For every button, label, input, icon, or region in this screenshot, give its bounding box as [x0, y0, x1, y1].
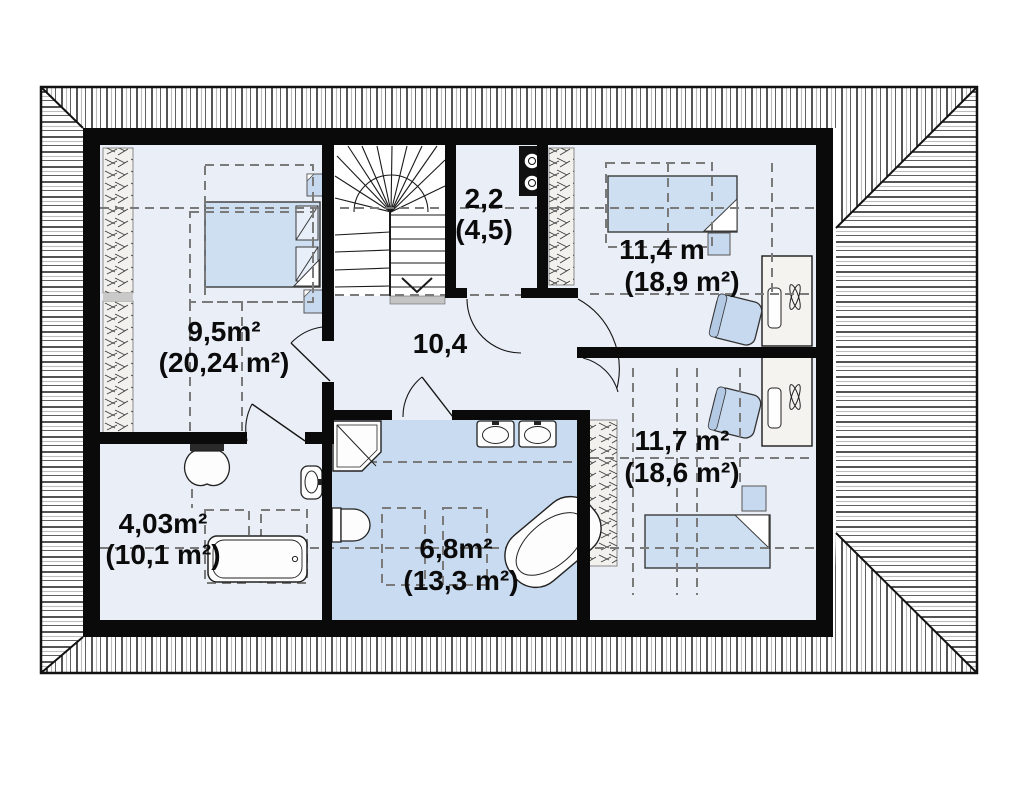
- shower-cabin: [333, 421, 381, 471]
- room-label-bathroom-area: 6,8m²: [419, 533, 492, 564]
- roof-slope-left: [41, 87, 83, 673]
- room-label-bedroom-2-area: 11,4 m: [619, 234, 705, 265]
- desk: [762, 256, 812, 346]
- stair-landing-strip: [390, 296, 445, 304]
- room-label-bedroom-3-total: (18,6 m²): [624, 457, 739, 488]
- room-label-bedroom-2-total: (18,9 m²): [624, 266, 739, 297]
- toilet: [185, 443, 230, 486]
- room-label-storage-area: 2,2: [465, 183, 504, 214]
- sink: [477, 421, 514, 447]
- room-label-bedroom-1-total: (20,24 m²): [159, 347, 290, 378]
- room-label-wc-total: (10,1 m²): [105, 539, 220, 570]
- wardrobe-bedroom-2: [549, 148, 574, 285]
- washbasin: [301, 466, 322, 499]
- room-label-wc-area: 4,03m²: [119, 508, 208, 539]
- desk: [762, 356, 812, 446]
- floor-plan-drawing: 9,5m² (20,24 m²) 10,4 2,2 (4,5) 11,4 m (…: [0, 0, 1024, 808]
- room-label-hall-area: 10,4: [413, 328, 468, 359]
- single-bed: [608, 176, 737, 232]
- room-label-storage-total: (4,5): [455, 214, 513, 245]
- wardrobe-bedroom-1: [103, 148, 133, 433]
- toilet: [332, 508, 370, 542]
- single-bed: [645, 515, 770, 568]
- room-label-bedroom-1-area: 9,5m²: [187, 316, 260, 347]
- monitor: [768, 388, 781, 428]
- double-bed: [205, 202, 320, 287]
- bathtub: [208, 536, 307, 582]
- sink: [519, 421, 556, 447]
- wardrobe-divider: [103, 293, 133, 301]
- room-label-bedroom-3-area: 11,7 m²: [635, 425, 730, 456]
- nightstand: [742, 486, 766, 511]
- room-label-bathroom-total: (13,3 m²): [403, 565, 518, 596]
- floor-plan-canvas: 9,5m² (20,24 m²) 10,4 2,2 (4,5) 11,4 m (…: [0, 0, 1024, 808]
